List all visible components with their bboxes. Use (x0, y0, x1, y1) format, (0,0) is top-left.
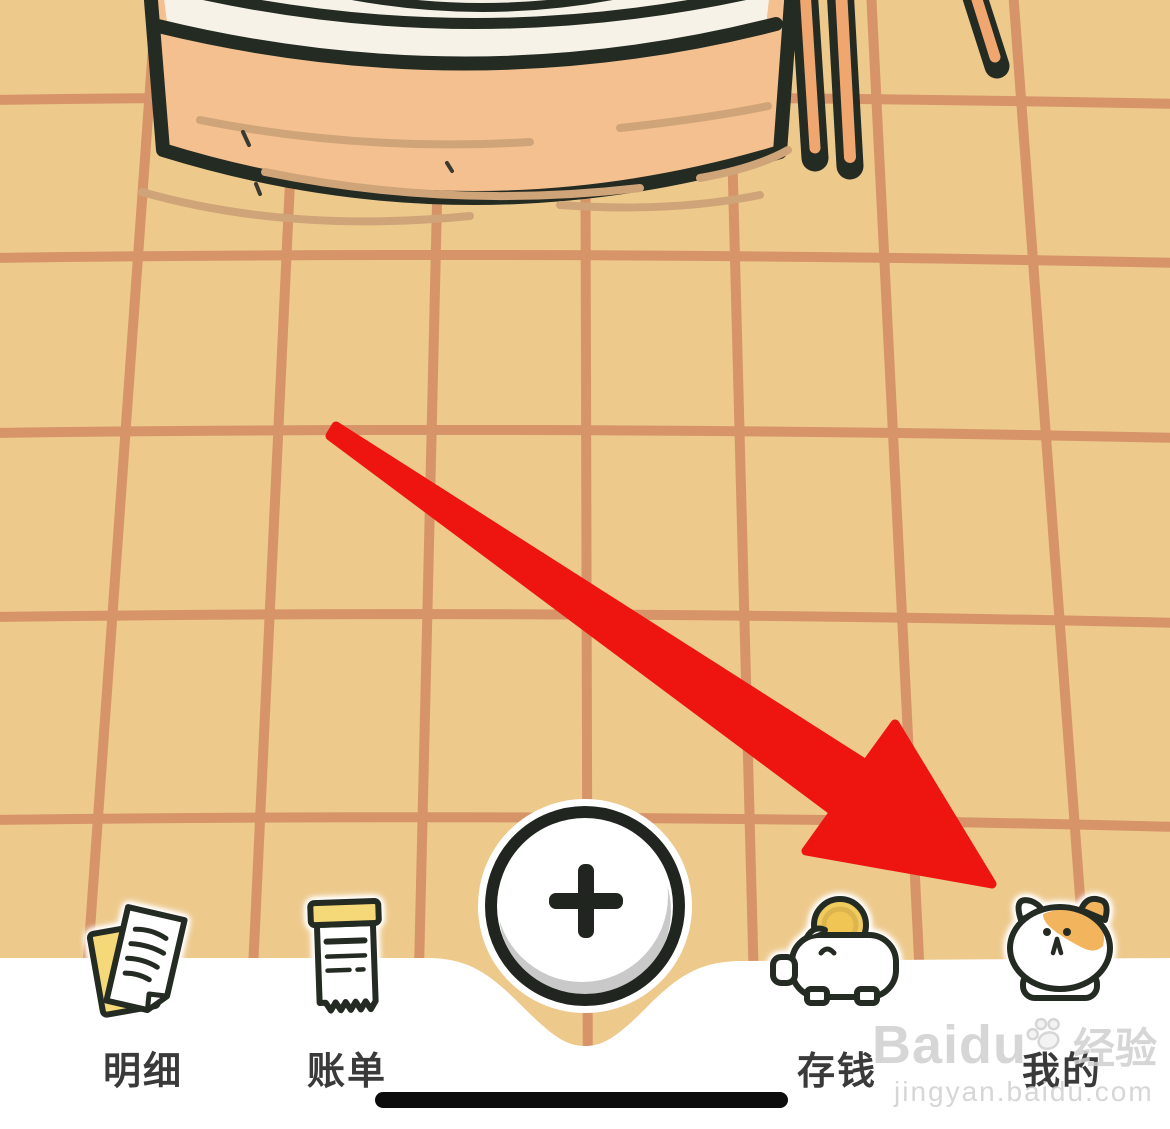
tab-profile-label[interactable]: 我的 (977, 1040, 1147, 1095)
paper-icon (86, 893, 204, 1035)
tab-savings-label[interactable]: 存钱 (752, 1040, 922, 1095)
tab-details-label[interactable]: 明细 (58, 1040, 228, 1095)
plus-icon (470, 790, 700, 1025)
tab-bills[interactable] (296, 890, 396, 1025)
home-indicator[interactable] (375, 1092, 788, 1108)
tab-bills-label[interactable]: 账单 (262, 1040, 432, 1095)
piggy-bank-icon (765, 885, 915, 1020)
receipt-icon (296, 890, 396, 1025)
tab-profile[interactable] (995, 888, 1125, 1018)
tab-details[interactable] (86, 893, 204, 1035)
cat-icon (995, 888, 1125, 1018)
app-screen: 明细 账单 (0, 0, 1170, 1129)
tab-savings[interactable] (765, 885, 915, 1020)
add-button[interactable] (470, 790, 700, 1025)
